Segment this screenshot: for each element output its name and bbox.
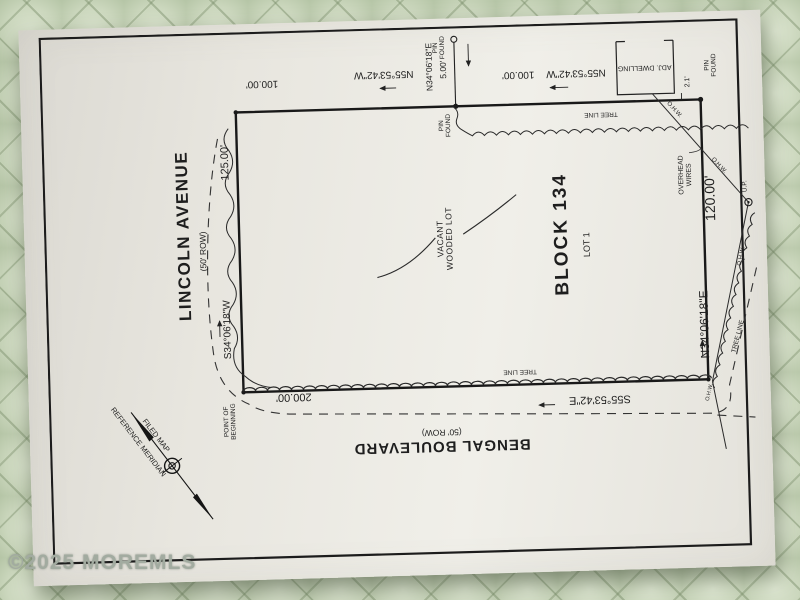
pin-found-label-mid: PIN FOUND bbox=[438, 114, 453, 137]
street-name-bengal: BENGAL BOULEVARD bbox=[353, 435, 531, 456]
bearing-rear-east: N55°53'42"W bbox=[546, 67, 606, 80]
plat-linework bbox=[39, 18, 766, 568]
dwelling-offset-label: 2.1' bbox=[684, 76, 692, 87]
street-row-lincoln: (50' ROW) bbox=[198, 231, 208, 271]
distance-rear-west: 100.00' bbox=[246, 78, 279, 90]
point-of-beginning-label: POINT OF BEGINNING bbox=[223, 403, 238, 440]
plat-drawing: LINCOLN AVENUE (50' ROW) BENGAL BOULEVAR… bbox=[39, 18, 766, 568]
pin-found-label-top: PIN FOUND bbox=[432, 36, 447, 59]
lot-label: LOT 1 bbox=[582, 232, 593, 257]
vacant-wooded-lot-label: VACANT WOODED LOT bbox=[435, 207, 455, 271]
overhead-wires-label: OVERHEAD WIRES bbox=[677, 155, 693, 195]
tree-line-label-bottom: TREE LINE bbox=[503, 368, 537, 376]
street-label-bengal: BENGAL BOULEVARD (50' ROW) bbox=[353, 425, 531, 456]
distance-west: 125.00' bbox=[219, 145, 232, 181]
distance-east: 120.00' bbox=[702, 175, 719, 221]
distance-rear-east: 100.00' bbox=[502, 69, 535, 81]
adjacent-dwelling-label: ADJ. DWELLING bbox=[618, 62, 672, 71]
lot-boundary bbox=[236, 99, 709, 392]
mls-watermark: ©2025 MOREMLS bbox=[8, 551, 196, 575]
distance-tie: 5.00' bbox=[439, 60, 449, 78]
block-label: BLOCK 134 bbox=[550, 173, 574, 296]
utility-pole-symbol bbox=[745, 198, 752, 205]
bearing-west: S34°06'18"W bbox=[221, 300, 234, 359]
pin-tie-line bbox=[451, 36, 459, 106]
bearing-east: N34°06'18"E bbox=[697, 290, 712, 358]
survey-paper-sheet: LINCOLN AVENUE (50' ROW) BENGAL BOULEVAR… bbox=[18, 10, 775, 587]
photo-of-survey: { "watermark": "©2025 MOREMLS", "streets… bbox=[0, 0, 800, 600]
distance-front: 200.00' bbox=[276, 390, 312, 403]
pin-found-marker bbox=[451, 36, 457, 42]
utility-pole-label: U.P. bbox=[741, 180, 748, 192]
corner-pins bbox=[233, 97, 711, 395]
bearing-front: S55°53'42"E bbox=[569, 392, 631, 406]
tree-lines bbox=[223, 98, 759, 402]
pin-found-label-corner: PIN FOUND bbox=[703, 53, 718, 76]
bearing-rear-west: N55°53'42"W bbox=[354, 68, 414, 81]
tree-line-label-top: TREE LINE bbox=[584, 110, 618, 118]
